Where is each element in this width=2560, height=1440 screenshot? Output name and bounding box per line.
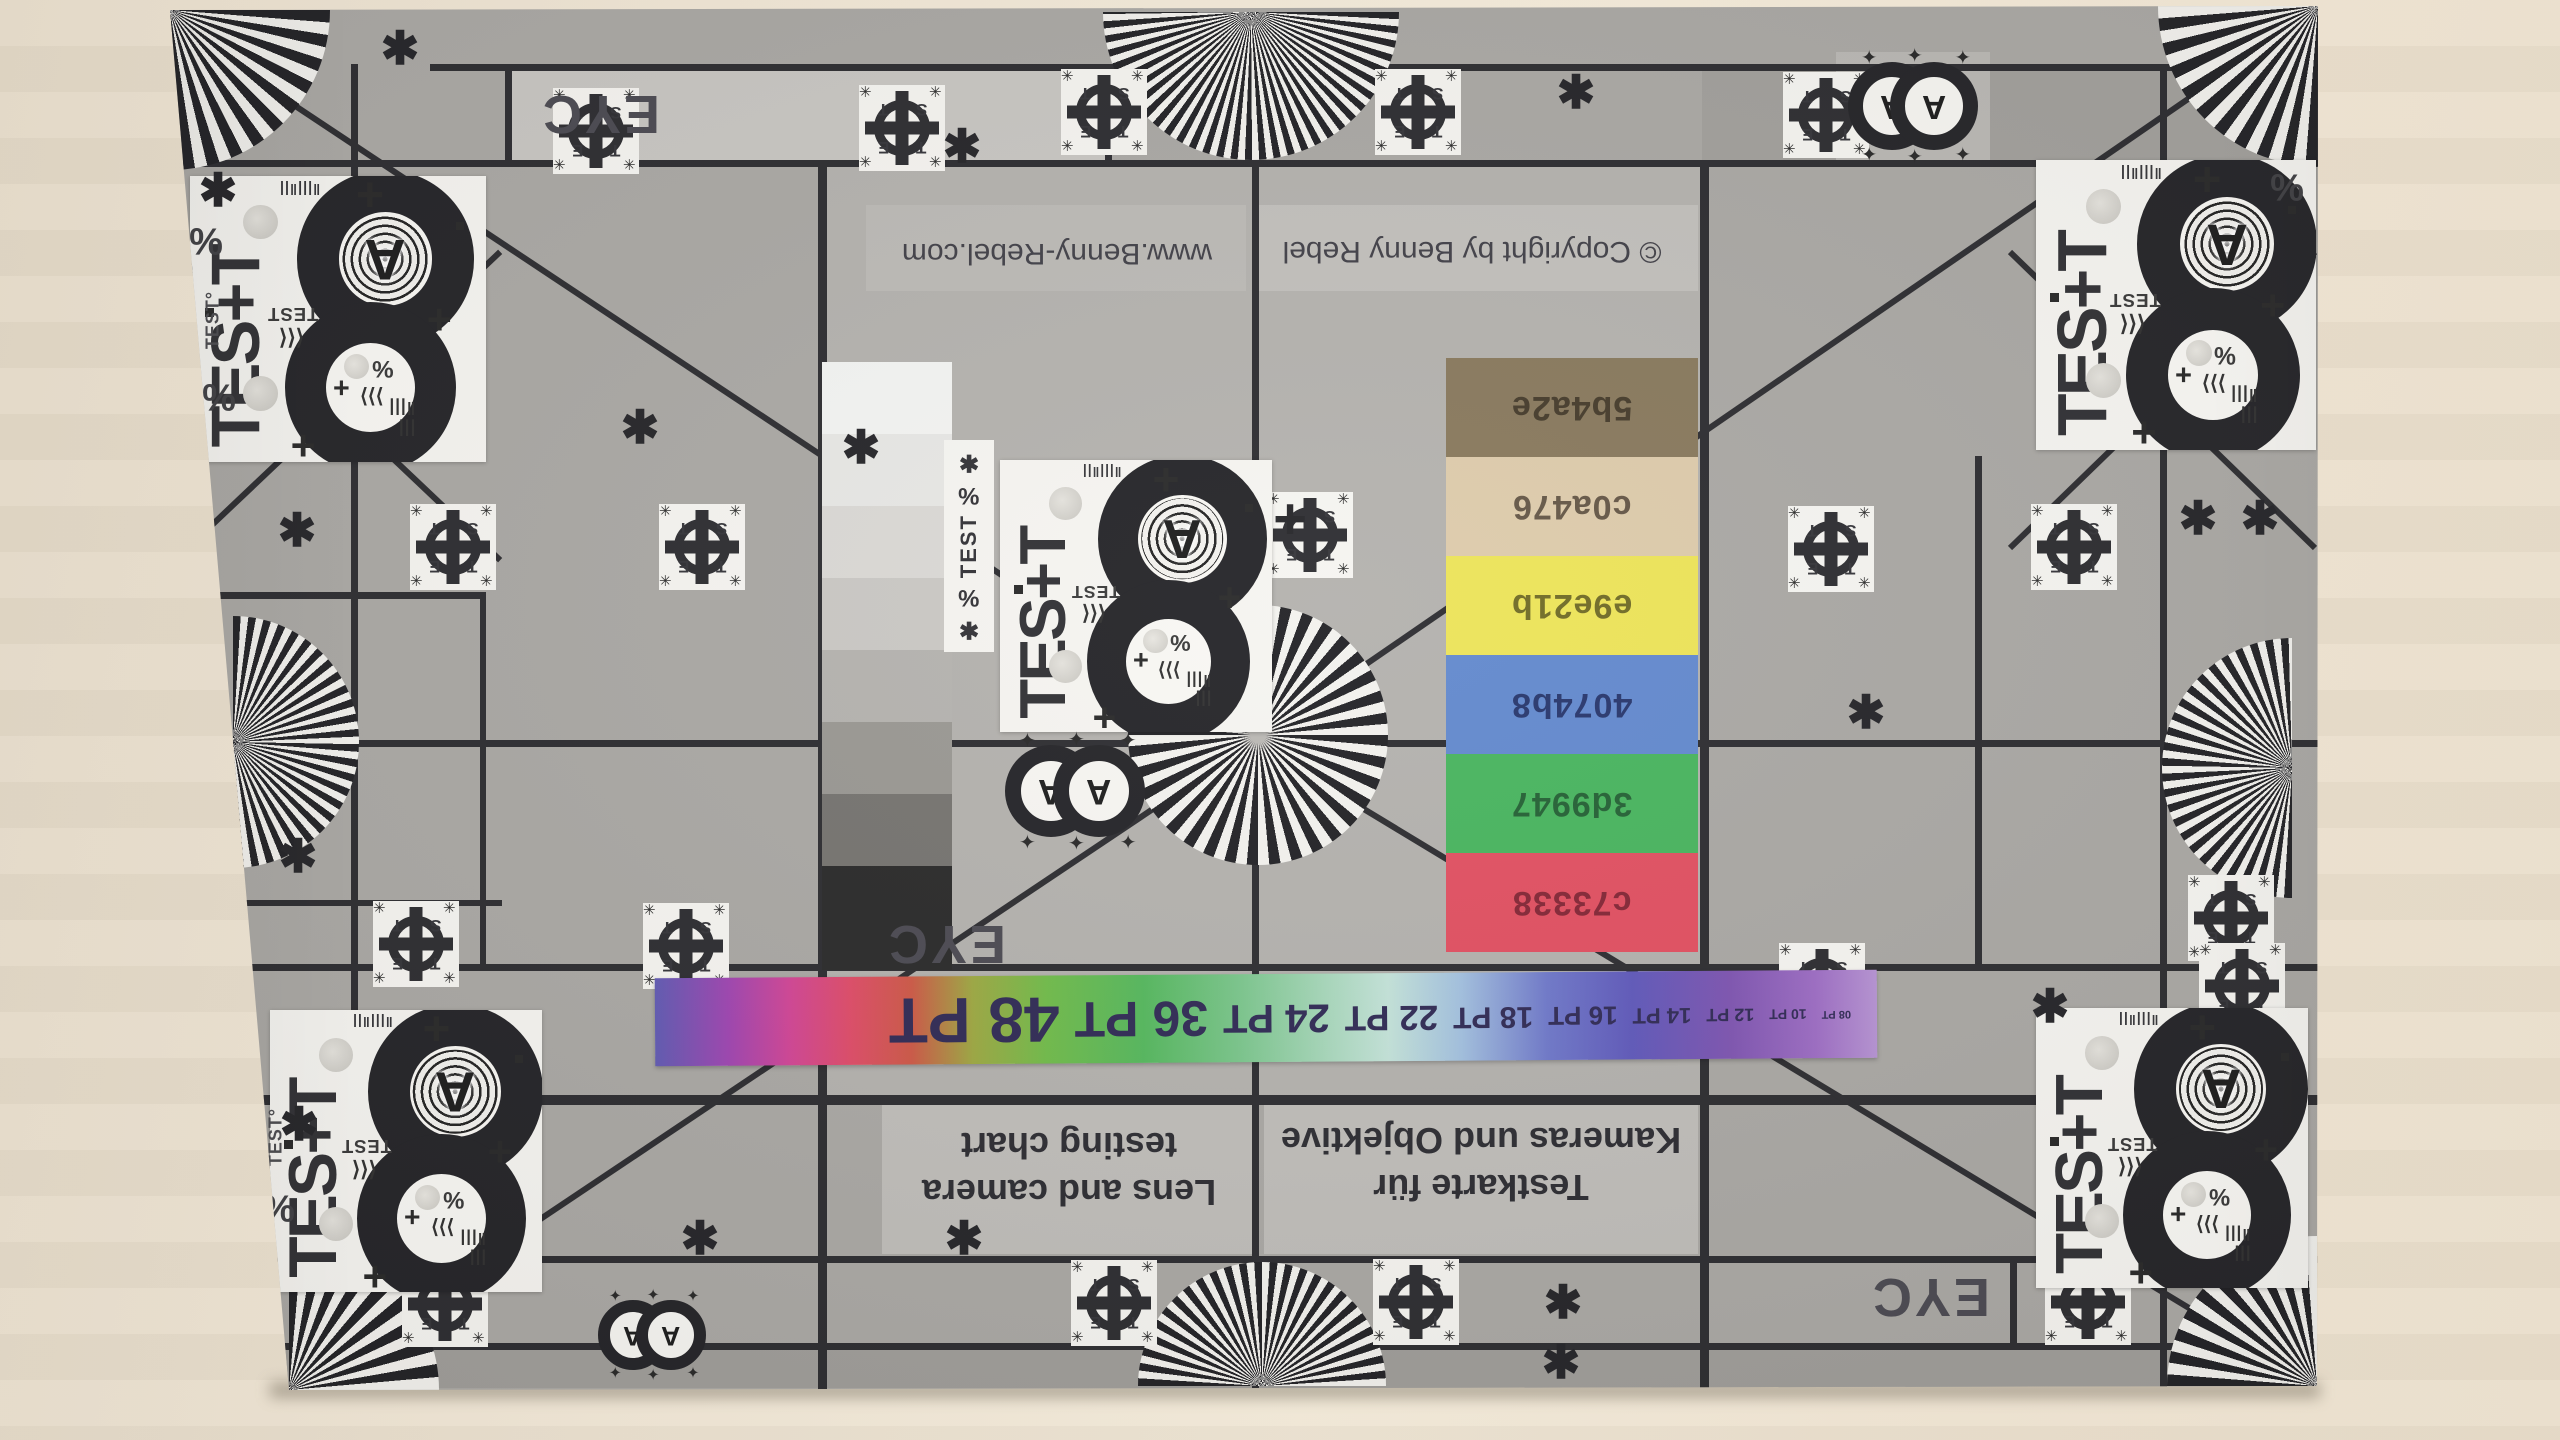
- corner-star-icon: ✳: [1788, 504, 1801, 522]
- crosshair-bar-vertical: [680, 909, 693, 983]
- asterisk-icon: ✱: [278, 503, 317, 557]
- chip-square-mark: [456, 222, 464, 230]
- chip-plus-mark: +: [2193, 160, 2222, 208]
- chip-mini-test-word: TEST: [2109, 289, 2161, 311]
- crosshair-letter: T: [1392, 1273, 1402, 1293]
- crosshair-registration-mark: TSET✳✳✳✳: [410, 504, 496, 590]
- eyc-label-top: EYC: [540, 83, 660, 145]
- chip-chevrons: ⟨⟨⟨: [1082, 601, 1106, 626]
- corner-star-icon: ✳: [659, 572, 672, 590]
- asterisk-icon: ✱: [681, 1211, 720, 1265]
- test-chip: TES+TA+%⟩⟩⟩|||‖|||+++TEST⟨⟨⟨‖|||‖||: [190, 176, 486, 462]
- corner-star-icon: ✳: [2031, 502, 2044, 520]
- crosshair-letter: S: [1845, 520, 1856, 540]
- marker-star-icon: ✦: [609, 1287, 622, 1306]
- test-chip: TES+TA+%⟩⟩⟩|||‖|||+++TEST⟨⟨⟨‖|||‖||: [2036, 1008, 2308, 1288]
- chip-gray-dot: [2086, 189, 2121, 224]
- percent-mark: %: [189, 219, 223, 262]
- crosshair-letter: S: [1430, 1273, 1441, 1293]
- corner-star-icon: ✳: [410, 502, 423, 520]
- marker-ring: A: [1890, 62, 1978, 150]
- crosshair-letter: T: [1807, 520, 1817, 540]
- corner-star-icon: ✳: [2188, 873, 2201, 891]
- crosshair-letter: E: [678, 556, 689, 576]
- color-patch: 3d9947: [1446, 754, 1698, 853]
- corner-star-icon: ✳: [1443, 1257, 1456, 1275]
- corner-star-icon: ✳: [2101, 502, 2114, 520]
- chip-texture-dot: [2186, 340, 2212, 366]
- grid-line-horizontal: [170, 160, 2318, 167]
- marker-star-icon: ✦: [1861, 143, 1877, 167]
- corner-star-icon: ✳: [1788, 574, 1801, 592]
- test-chart: ✱%TEST%✱5b4a2ec0a476e9e21b4074b83d9947c7…: [0, 0, 2560, 1440]
- chip-gray-dot: [319, 1207, 353, 1241]
- crosshair-bar-vertical: [896, 91, 909, 165]
- siemens-fan-edge: [1103, 12, 1399, 160]
- chip-chevrons: ⟨⟨⟨: [352, 1157, 377, 1183]
- crosshair-letter: E: [1802, 124, 1813, 144]
- chip-plus-mark: +: [422, 1010, 450, 1057]
- marker-star-icon: ✦: [1068, 727, 1085, 752]
- chip-texture-dot: [1143, 629, 1167, 653]
- color-patch: 4074b8: [1446, 655, 1698, 754]
- pt-size-labels: 08 PT10 PT12 PT14 PT16 PT18 PT22 PT24 PT…: [655, 970, 1878, 1067]
- asterisk-icon: ✱: [1542, 1335, 1581, 1389]
- pt-size-label: 10 PT: [1769, 1006, 1806, 1022]
- grid-line-vertical: [480, 592, 486, 966]
- chip-plus-mark: +: [2128, 1249, 2153, 1288]
- marker-star-icon: ✦: [1120, 728, 1137, 753]
- corner-star-icon: ✳: [480, 572, 493, 590]
- chip-gray-dot: [1049, 650, 1082, 683]
- chip-gray-dot: [2086, 363, 2121, 398]
- test-chip: TES+TA+%⟩⟩⟩|||‖|||+++TEST⟨⟨⟨‖|||‖||: [270, 1010, 542, 1292]
- crosshair-letter: S: [2256, 957, 2267, 977]
- marker-star-icon: ✦: [1019, 830, 1036, 855]
- chip-plus-mark: +: [1152, 460, 1179, 506]
- pt-size-label: 16 PT: [1548, 1000, 1618, 1031]
- crosshair-bar-vertical: [696, 510, 709, 584]
- crosshair-registration-mark: TSET✳✳✳✳: [373, 901, 459, 987]
- grid-line-vertical: [505, 64, 512, 162]
- crosshair-letter: T: [429, 518, 439, 538]
- marker-star-icon: ✦: [1019, 728, 1036, 753]
- marker-letter-a: A: [661, 1320, 680, 1351]
- crosshair-bar-vertical: [1820, 78, 1833, 152]
- crosshair-letter: E: [421, 1313, 432, 1333]
- chart-title-english: Lens and camera testing chart: [922, 1121, 1216, 1215]
- asterisk-icon: ✱: [1557, 65, 1596, 119]
- color-patch: 5b4a2e: [1446, 358, 1698, 457]
- corner-star-icon: ✳: [373, 899, 386, 917]
- double-ring-a-marker: AA✦✦✦✦✦✦: [1005, 745, 1145, 837]
- marker-ring: A: [1053, 745, 1145, 837]
- crosshair-letter: T: [878, 99, 888, 119]
- title-de-line1: Testkarte für: [1281, 1163, 1681, 1210]
- chip-plus-mark: +: [427, 296, 452, 345]
- plus-mark: +: [1273, 486, 1307, 553]
- chip-texture-percent: %: [2209, 1182, 2230, 1210]
- chip-gray-dot: [319, 1038, 353, 1072]
- grid-line-vertical: [1700, 160, 1709, 1390]
- corner-star-icon: ✳: [1445, 67, 1458, 85]
- pt-size-label: 24 PT: [1223, 995, 1330, 1041]
- crosshair-letter: T: [1432, 121, 1442, 141]
- corner-star-icon: ✳: [2258, 873, 2271, 891]
- crosshair-letter: S: [1128, 1274, 1139, 1294]
- crosshair-letter: E: [392, 953, 403, 973]
- corner-star-icon: ✳: [2269, 941, 2282, 959]
- corner-star-icon: ✳: [659, 502, 672, 520]
- siemens-fan-edge: [1138, 1262, 1386, 1386]
- mini-test-label: TEST°: [203, 291, 224, 349]
- color-patch: c73338: [1446, 853, 1698, 952]
- mini-strip-glyph: %: [958, 583, 979, 611]
- asterisk-icon: ✱: [2241, 491, 2280, 545]
- crosshair-letter: E: [878, 137, 889, 157]
- crosshair-letter: E: [1807, 558, 1818, 578]
- chip-square-mark: [1245, 504, 1253, 512]
- color-patch-hex-label: c73338: [1512, 883, 1631, 922]
- mini-strip-glyph: TEST: [956, 514, 982, 578]
- crosshair-letter: E: [1394, 121, 1405, 141]
- chip-texture-dot: [344, 354, 370, 380]
- crosshair-letter: T: [2088, 556, 2098, 576]
- corner-star-icon: ✳: [1337, 490, 1350, 508]
- chip-texture-bars: ‖|||‖||: [279, 180, 320, 196]
- corner-star-icon: ✳: [443, 969, 456, 987]
- chip-plus-mark: +: [2131, 409, 2156, 450]
- crosshair-letter: E: [429, 556, 440, 576]
- crosshair-letter: T: [1324, 544, 1334, 564]
- chip-texture-percent: %: [2214, 340, 2236, 368]
- crosshair-letter: T: [662, 917, 672, 937]
- color-patch: c0a476: [1446, 457, 1698, 556]
- corner-star-icon: ✳: [859, 83, 872, 101]
- chip-texture-bars: ‖|||‖||: [2118, 1012, 2159, 1028]
- chip-gray-dot: [1049, 487, 1082, 520]
- corner-star-icon: ✳: [472, 1329, 485, 1347]
- crosshair-letter: T: [467, 556, 477, 576]
- asterisk-icon: ✱: [279, 829, 318, 883]
- grid-line-horizontal: [170, 592, 482, 599]
- crosshair-letter: T: [1845, 558, 1855, 578]
- crosshair-letter: T: [430, 953, 440, 973]
- crosshair-letter: S: [2088, 518, 2099, 538]
- chip-texture-percent: %: [1170, 629, 1191, 656]
- crosshair-registration-mark: TSET✳✳✳✳: [859, 85, 945, 171]
- crosshair-bar-vertical: [1108, 1266, 1121, 1340]
- corner-star-icon: ✳: [1858, 504, 1871, 522]
- corner-star-icon: ✳: [1375, 67, 1388, 85]
- pt-size-label: 36 PT: [1074, 989, 1208, 1048]
- double-ring-a-marker: AA✦✦✦✦✦✦: [598, 1300, 706, 1370]
- asterisk-icon: ✱: [1847, 685, 1886, 739]
- grayscale-step: [822, 650, 952, 722]
- crosshair-letter: S: [1324, 506, 1335, 526]
- chip-square-mark: [515, 1055, 523, 1063]
- grayscale-step: [822, 578, 952, 650]
- crosshair-letter: S: [716, 518, 727, 538]
- corner-star-icon: ✳: [2101, 572, 2114, 590]
- crosshair-registration-mark: TSET✳✳✳✳: [1373, 1259, 1459, 1345]
- marker-star-icon: ✦: [1120, 830, 1137, 855]
- crosshair-letter: S: [916, 99, 927, 119]
- chip-texture-bars: |||‖|||: [1173, 670, 1211, 708]
- chip-mini-test-word: TEST: [2107, 1133, 2157, 1154]
- chip-letter-a: A: [2200, 1057, 2240, 1122]
- color-patch-hex-label: 5b4a2e: [1511, 388, 1632, 427]
- marker-star-icon: ✦: [1861, 46, 1877, 70]
- photo-of-test-chart: ✱%TEST%✱5b4a2ec0a476e9e21b4074b83d9947c7…: [0, 0, 2560, 1440]
- chart-title-german: Testkarte für Kameras und Objektive: [1281, 1116, 1681, 1210]
- marker-star-icon: ✦: [1907, 145, 1923, 169]
- crosshair-letter: T: [2207, 889, 2217, 909]
- pt-size-label: 18 PT: [1453, 999, 1533, 1034]
- test-chip: TES+TA+%⟩⟩⟩|||‖|||+++TEST⟨⟨⟨‖|||‖||: [1000, 460, 1272, 732]
- chip-mini-test-word: TEST: [267, 303, 318, 325]
- crosshair-letter: T: [2218, 957, 2228, 977]
- chip-square-mark: [2288, 206, 2296, 214]
- corner-star-icon: ✳: [1443, 1327, 1456, 1345]
- crosshair-letter: S: [467, 518, 478, 538]
- asterisk-icon: ✱: [381, 21, 420, 75]
- crosshair-bar-vertical: [1412, 75, 1425, 149]
- marker-star-icon: ✦: [647, 1286, 660, 1305]
- marker-star-icon: ✦: [1068, 831, 1085, 856]
- chip-texture-percent: %: [372, 354, 394, 382]
- pt-size-label: 12 PT: [1706, 1004, 1754, 1025]
- marker-star-icon: ✦: [1907, 44, 1923, 68]
- corner-star-icon: ✳: [2045, 1327, 2058, 1345]
- pt-size-rainbow-bar: 08 PT10 PT12 PT14 PT16 PT18 PT22 PT24 PT…: [655, 970, 1878, 1067]
- crosshair-letter: E: [1392, 1311, 1403, 1331]
- crosshair-registration-mark: TSET✳✳✳✳: [1375, 69, 1461, 155]
- corner-star-icon: ✳: [2115, 1327, 2128, 1345]
- crosshair-registration-mark: TSET✳✳✳✳: [1061, 69, 1147, 155]
- chip-plus-mark: +: [1092, 694, 1116, 732]
- corner-star-icon: ✳: [729, 502, 742, 520]
- asterisk-icon: ✱: [621, 400, 660, 454]
- corner-star-icon: ✳: [1131, 67, 1144, 85]
- chip-chevrons: ⟨⟨⟨: [2120, 311, 2145, 337]
- chip-mini-test-word: TEST: [341, 1135, 392, 1157]
- crosshair-registration-mark: TSET✳✳✳✳: [1788, 506, 1874, 592]
- marker-star-icon: ✦: [609, 1364, 622, 1383]
- mini-test-strip: ✱%TEST%✱: [944, 440, 994, 652]
- chip-letter-a: A: [435, 1059, 476, 1124]
- siemens-fan-corner: [170, 10, 330, 170]
- marker-star-icon: ✦: [1955, 46, 1971, 70]
- chip-texture-bars: |||‖|||: [2217, 384, 2258, 426]
- crosshair-bar-vertical: [447, 510, 460, 584]
- chip-texture-dot: [2181, 1182, 2206, 1207]
- asterisk-icon: ✱: [1544, 1275, 1583, 1329]
- chip-texture-bars: |||‖|||: [375, 397, 415, 439]
- corner-star-icon: ✳: [373, 969, 386, 987]
- crosshair-registration-mark: TSET✳✳✳✳: [1071, 1260, 1157, 1346]
- corner-star-icon: ✳: [2199, 941, 2212, 959]
- corner-star-icon: ✳: [859, 153, 872, 171]
- eyc-label-bottom: EYC: [1870, 1266, 1990, 1328]
- corner-star-icon: ✳: [1071, 1258, 1084, 1276]
- percent-mark: %: [261, 1186, 295, 1229]
- chip-texture-percent: %: [443, 1185, 464, 1213]
- corner-star-icon: ✳: [929, 153, 942, 171]
- marker-letter-a: A: [1922, 87, 1946, 125]
- crosshair-letter: S: [700, 917, 711, 937]
- corner-star-icon: ✳: [1141, 1328, 1154, 1346]
- asterisk-icon: ✱: [199, 163, 238, 217]
- title-en-line1: Lens and camera: [922, 1168, 1216, 1215]
- corner-star-icon: ✳: [1373, 1327, 1386, 1345]
- color-patch-hex-label: 4074b8: [1511, 685, 1632, 724]
- chip-gray-dot: [2085, 1036, 2119, 1070]
- crosshair-letter: T: [2102, 1311, 2112, 1331]
- crosshair-bar-vertical: [2068, 510, 2081, 584]
- chip-texture-bars: ‖|||‖||: [1082, 464, 1122, 479]
- title-en-line2: testing chart: [922, 1121, 1216, 1168]
- chip-plus-mark: +: [1218, 574, 1242, 621]
- asterisk-icon: ✱: [2031, 979, 2070, 1033]
- crosshair-letter: T: [1802, 86, 1812, 106]
- chip-plus-mark: +: [291, 422, 316, 462]
- chip-plus-mark: +: [356, 176, 384, 223]
- mini-strip-glyph: ✱: [959, 448, 979, 477]
- title-de-line2: Kameras und Objektive: [1281, 1116, 1681, 1163]
- marker-letter-a: A: [1086, 771, 1111, 811]
- corner-star-icon: ✳: [713, 901, 726, 919]
- chip-plus-mark: +: [2260, 282, 2285, 331]
- asterisk-icon: ✱: [2179, 491, 2218, 545]
- chip-gray-dot: [243, 205, 277, 239]
- crosshair-letter: T: [716, 556, 726, 576]
- crosshair-letter: T: [392, 915, 402, 935]
- crosshair-letter: E: [2064, 1311, 2075, 1331]
- chip-square-mark: [1014, 585, 1023, 594]
- crosshair-letter: S: [2245, 889, 2256, 909]
- corner-star-icon: ✳: [1071, 1328, 1084, 1346]
- crosshair-letter: S: [1432, 83, 1443, 103]
- asterisk-icon: ✱: [943, 119, 982, 173]
- crosshair-letter: S: [430, 915, 441, 935]
- asterisk-icon: ✱: [945, 1211, 984, 1265]
- chip-letter-a: A: [1163, 507, 1202, 570]
- color-patch-hex-label: c0a476: [1512, 487, 1631, 526]
- copyright-notice: © Copyright by Benny Rebel: [1283, 234, 1662, 268]
- chip-chevrons: ⟨⟨⟨: [2118, 1154, 2143, 1179]
- corner-star-icon: ✳: [410, 572, 423, 590]
- crosshair-registration-mark: TSET✳✳✳✳: [643, 903, 729, 989]
- pt-size-label: 48 PT: [889, 982, 1060, 1057]
- color-patch-hex-label: e9e21b: [1511, 586, 1632, 625]
- chip-letter-a: A: [365, 226, 406, 292]
- marker-star-icon: ✦: [1955, 143, 1971, 167]
- crosshair-registration-mark: TSET✳✳✳✳: [2031, 504, 2117, 590]
- corner-star-icon: ✳: [1131, 137, 1144, 155]
- color-patch: e9e21b: [1446, 556, 1698, 655]
- chip-plus-mark: +: [2254, 1126, 2279, 1174]
- crosshair-letter: T: [2050, 518, 2060, 538]
- chip-mini-test-word: TEST: [1071, 581, 1120, 602]
- corner-star-icon: ✳: [443, 899, 456, 917]
- crosshair-letter: T: [1394, 83, 1404, 103]
- mini-test-label: TEST°: [266, 1108, 287, 1166]
- marker-ring: A: [636, 1300, 706, 1370]
- marker-star-icon: ✦: [687, 1287, 700, 1306]
- crosshair-letter: T: [678, 518, 688, 538]
- mini-strip-glyph: %: [958, 481, 979, 509]
- chip-square-mark: [2050, 293, 2059, 302]
- corner-star-icon: ✳: [929, 83, 942, 101]
- chip-plus-mark: +: [2188, 1008, 2216, 1055]
- corner-star-icon: ✳: [2031, 572, 2044, 590]
- crosshair-registration-mark: TSET✳✳✳✳: [659, 504, 745, 590]
- crosshair-letter: E: [2050, 556, 2061, 576]
- marker-star-icon: ✦: [647, 1366, 660, 1385]
- marker-star-icon: ✦: [687, 1364, 700, 1383]
- crosshair-letter: T: [459, 1313, 469, 1333]
- corner-star-icon: ✳: [729, 572, 742, 590]
- chip-gray-dot: [2085, 1204, 2119, 1238]
- chip-plus-mark: +: [488, 1128, 513, 1176]
- chip-texture-bars: |||‖|||: [446, 1228, 486, 1268]
- corner-star-icon: ✳: [1373, 1257, 1386, 1275]
- pt-size-label: 14 PT: [1632, 1002, 1691, 1028]
- crosshair-letter: T: [1118, 121, 1128, 141]
- corner-star-icon: ✳: [1783, 70, 1796, 88]
- crosshair-letter: T: [1430, 1311, 1440, 1331]
- percent-mark: %: [2270, 165, 2304, 208]
- corner-star-icon: ✳: [1849, 941, 1862, 959]
- crosshair-letter: T: [1080, 83, 1090, 103]
- chip-texture-bars: |||‖|||: [2211, 1224, 2251, 1264]
- chip-texture-bars: ‖|||‖||: [352, 1014, 393, 1030]
- grayscale-step: [822, 794, 952, 866]
- crosshair-letter: E: [662, 955, 673, 975]
- grayscale-step: [822, 506, 952, 578]
- grid-line-vertical: [2010, 1256, 2017, 1346]
- crosshair-letter: T: [700, 955, 710, 975]
- corner-star-icon: ✳: [643, 901, 656, 919]
- chip-square-mark: [2281, 1053, 2289, 1061]
- chip-plus-mark: +: [362, 1253, 387, 1292]
- color-patch-hex-label: 3d9947: [1511, 784, 1632, 823]
- crosshair-letter: S: [1118, 83, 1129, 103]
- corner-star-icon: ✳: [1445, 137, 1458, 155]
- corner-star-icon: ✳: [1337, 560, 1350, 578]
- corner-star-icon: ✳: [1779, 941, 1792, 959]
- pt-size-label: 22 PT: [1345, 997, 1439, 1038]
- mini-strip-glyph: ✱: [959, 615, 979, 644]
- crosshair-bar-vertical: [1098, 75, 1111, 149]
- double-ring-a-marker: AA✦✦✦✦✦✦: [1848, 62, 1978, 150]
- corner-star-icon: ✳: [553, 156, 566, 174]
- website-url: www.Benny-Rebel.com: [902, 236, 1212, 270]
- asterisk-icon: ✱: [842, 420, 881, 474]
- chip-texture-bars: ‖|||‖||: [2120, 164, 2162, 180]
- siemens-fan-edge: [2162, 638, 2292, 898]
- chip-chevrons: ⟨⟨⟨: [279, 325, 304, 350]
- pt-size-label: 08 PT: [1822, 1008, 1851, 1020]
- chip-letter-a: A: [2206, 211, 2248, 278]
- corner-star-icon: ✳: [1858, 574, 1871, 592]
- eyc-label-center: EYC: [886, 913, 1006, 975]
- corner-star-icon: ✳: [1141, 1258, 1154, 1276]
- corner-star-icon: ✳: [623, 156, 636, 174]
- grayscale-step: [822, 722, 952, 794]
- corner-star-icon: ✳: [643, 971, 656, 989]
